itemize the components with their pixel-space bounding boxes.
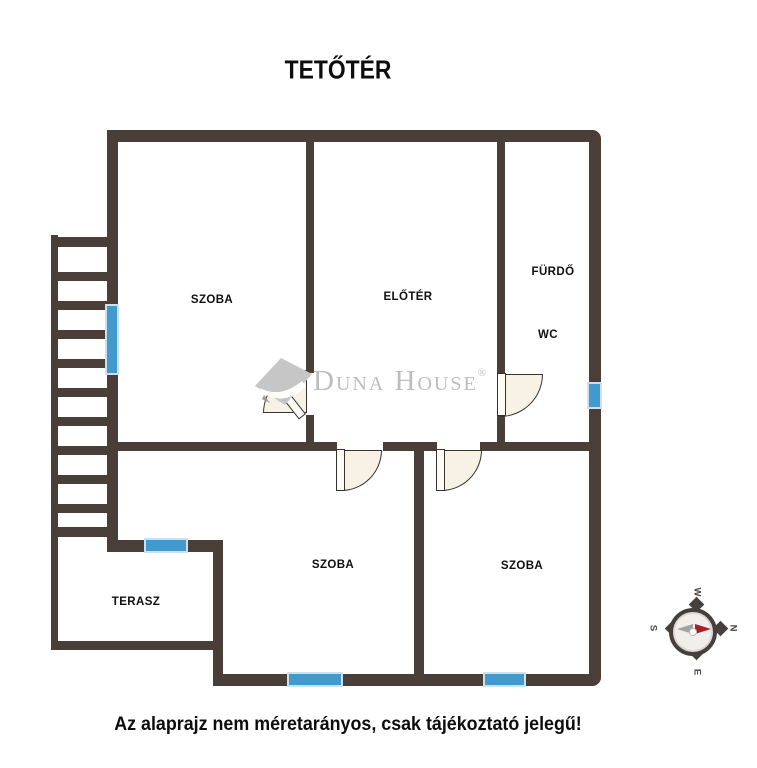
room-label-eloter: ELŐTÉR — [383, 291, 432, 303]
compass-needle-north — [695, 624, 711, 634]
wall-middle-right — [480, 442, 601, 451]
wall-terasz-right — [213, 540, 223, 686]
wall-middle-center — [383, 442, 437, 451]
floorplan-canvas: TETŐTÉR SZOBA ELŐTÉR FÜRDŐ — [0, 0, 757, 768]
stair-step — [58, 417, 107, 426]
stair-step — [58, 388, 107, 397]
disclaimer-caption: Az alaprajz nem méretarányos, csak tájék… — [114, 714, 582, 736]
stair-step — [58, 446, 107, 455]
wall-middle-left — [107, 442, 337, 451]
stair-step — [58, 504, 107, 513]
wall-terasz-left — [51, 537, 58, 650]
room-label-terasz: TERASZ — [112, 596, 160, 608]
compass-label-s: S — [648, 625, 659, 631]
room-label-furdo: FÜRDŐ — [532, 266, 575, 278]
staircase-top-wall — [51, 237, 113, 247]
window-bottom-right — [483, 672, 526, 687]
wall-szoba-eloter-upper — [306, 142, 314, 373]
stair-step — [58, 301, 107, 310]
compass-label-e: E — [692, 669, 703, 675]
wall-outer-top — [107, 130, 601, 142]
room-label-wc: WC — [538, 329, 558, 341]
room-label-szoba-middle: SZOBA — [312, 559, 354, 571]
compass-label-n: N — [728, 625, 739, 632]
compass-label-w: W — [692, 588, 703, 597]
room-label-szoba-top: SZOBA — [191, 294, 233, 306]
window-terasz — [144, 538, 188, 553]
compass-pivot — [690, 629, 696, 635]
window-left-wall — [105, 304, 119, 375]
wall-outer-bottom — [213, 674, 601, 686]
window-right-wall — [587, 382, 602, 409]
duna-house-logo-icon — [254, 357, 314, 407]
door-swing-szoba-bottom-right — [441, 450, 482, 491]
door-leaf-furdo — [497, 373, 506, 416]
door-leaf-szoba-bottom-right — [436, 449, 445, 491]
compass-rose: N E S W — [647, 586, 739, 678]
wall-bottom-rooms-divider — [414, 450, 424, 674]
stair-step — [58, 272, 107, 281]
room-label-szoba-right: SZOBA — [501, 560, 543, 572]
staircase-outer-wall — [51, 235, 58, 545]
window-bottom-middle — [287, 672, 343, 687]
stair-step — [58, 475, 107, 484]
door-leaf-szoba-bottom-middle — [336, 449, 345, 491]
door-swing-szoba-bottom-middle — [341, 450, 382, 491]
stair-step — [58, 359, 107, 368]
page-title: TETŐTÉR — [285, 55, 392, 86]
wall-eloter-furdo-upper — [497, 142, 505, 374]
watermark-brand: Duna House® — [313, 365, 486, 398]
stair-step — [58, 330, 107, 339]
staircase-bottom-wall — [51, 527, 113, 537]
door-swing-furdo — [500, 374, 543, 417]
wall-terasz-bottom — [51, 641, 223, 650]
registered-mark: ® — [478, 367, 486, 379]
